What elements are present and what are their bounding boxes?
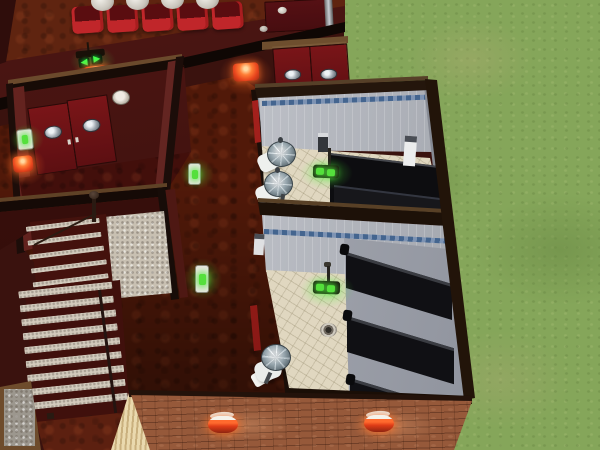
exit-arrow-right: ▶ [91,54,103,65]
sink-basin [261,344,291,371]
light-switch[interactable] [16,128,34,151]
floor-light-base [313,281,340,295]
porthole-window [320,68,338,80]
lantern-body [208,416,238,433]
floor-light-pole [328,148,331,166]
door-handle [67,139,71,144]
floor-light-base [313,165,339,179]
artwork-canvas [4,389,35,446]
towel-dispenser[interactable] [253,234,264,255]
light-switch[interactable] [195,265,209,293]
newel-cap [89,191,99,199]
newel-post [92,196,96,222]
floor-drain [320,323,337,337]
stall-post [339,243,349,255]
wall-sconce[interactable] [12,155,34,173]
light-switch[interactable] [188,163,201,185]
porthole-window [43,124,63,140]
floor-light[interactable] [311,262,341,298]
stall-post [342,309,352,321]
sink-faucet [275,167,280,173]
game-viewport: ◀ ▶ [0,0,600,450]
floor-light[interactable] [311,148,341,181]
wall-sconce[interactable] [232,62,259,82]
wall-knob [259,26,267,32]
sink-faucet [278,137,283,143]
brick-lantern[interactable] [362,409,396,435]
pedestal-sink[interactable] [248,338,298,390]
sink-basin [264,171,293,197]
door-handle [75,137,79,142]
smoke-detector[interactable] [112,90,130,105]
brick-lantern[interactable] [206,410,240,436]
wall-knob [278,7,287,14]
lantern-body [364,415,394,432]
sink-basin [267,141,296,167]
towel-dispenser[interactable] [403,136,417,167]
porthole-window [82,118,102,134]
stair-foot [47,413,55,420]
porthole-window [284,69,302,81]
stall-post [345,373,355,385]
